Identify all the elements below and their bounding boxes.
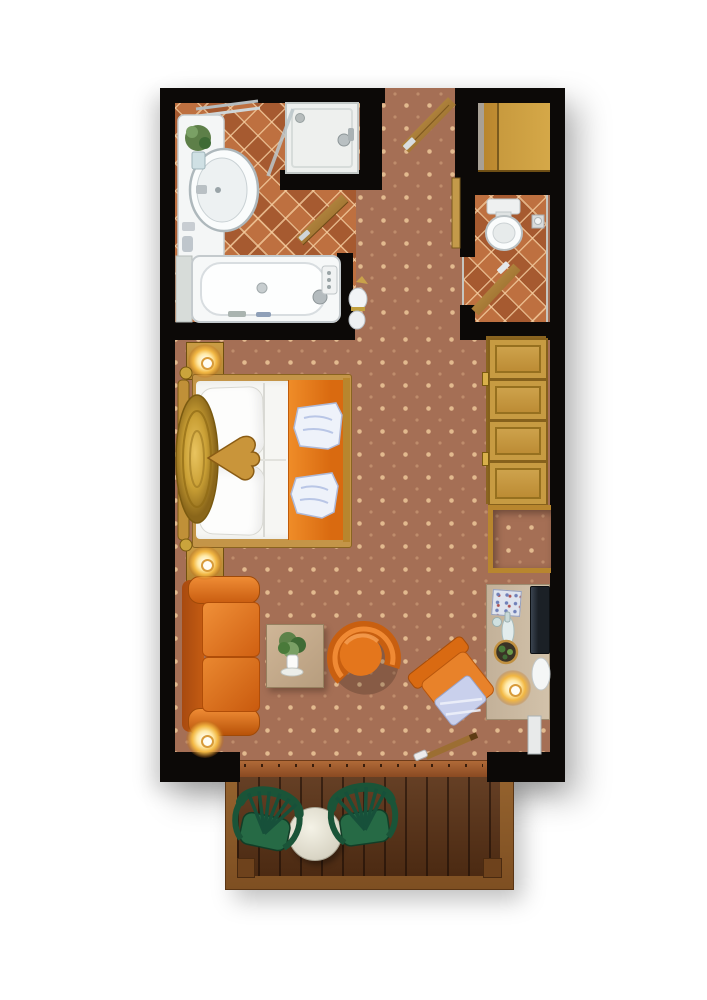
sofa-armrest-top bbox=[188, 576, 260, 604]
wall-closet-left bbox=[455, 88, 478, 173]
wall-shower-bottom bbox=[280, 170, 382, 190]
tv bbox=[530, 586, 550, 654]
pillow bbox=[199, 386, 265, 458]
nightstand-lamp-bottom bbox=[188, 546, 222, 580]
lamp-core bbox=[201, 559, 214, 572]
balcony-corner-left bbox=[237, 858, 255, 878]
threshold-track bbox=[244, 764, 483, 767]
wall-top-left bbox=[160, 88, 385, 103]
floor-lamp bbox=[186, 720, 224, 758]
sofa bbox=[182, 576, 260, 736]
lamp-core bbox=[201, 357, 214, 370]
wardrobe-door-3 bbox=[488, 420, 548, 462]
nightstand-lamp-top bbox=[188, 344, 222, 378]
desk-lamp-core bbox=[509, 684, 522, 697]
sofa-cushion bbox=[202, 657, 260, 712]
wardrobe-door-4 bbox=[488, 461, 548, 506]
balcony-deck bbox=[237, 768, 500, 876]
wardrobe-door-1 bbox=[488, 338, 548, 380]
wall-bathroom-bottom bbox=[160, 322, 355, 340]
magazine bbox=[491, 589, 522, 617]
entry-closet-divider bbox=[497, 103, 499, 170]
balcony-table bbox=[288, 807, 342, 861]
balcony-corner-right bbox=[483, 858, 502, 878]
bathroom-floor bbox=[160, 88, 356, 340]
wall-wc-left-upper bbox=[460, 195, 475, 257]
bed-runner bbox=[288, 380, 345, 540]
balcony-threshold bbox=[240, 760, 487, 777]
luggage-niche bbox=[488, 505, 551, 573]
floor-lamp-core bbox=[201, 735, 214, 748]
wall-wc-top bbox=[455, 170, 565, 195]
pillow bbox=[199, 464, 265, 536]
sheet-center-line bbox=[200, 459, 286, 461]
wall-bottom-right bbox=[487, 752, 565, 782]
wardrobe-door-2 bbox=[488, 379, 548, 421]
desk-lamp bbox=[495, 670, 531, 706]
bed-runner-wood-edge bbox=[343, 378, 350, 542]
wardrobe-hinge-2 bbox=[482, 452, 489, 466]
sofa-cushion bbox=[202, 602, 260, 657]
coffee-table bbox=[266, 624, 324, 688]
entry-closet bbox=[478, 103, 550, 172]
wall-left bbox=[160, 88, 175, 782]
floor-plan bbox=[0, 0, 707, 1000]
wall-wc-left-lower bbox=[460, 305, 475, 340]
wardrobe-hinge-1 bbox=[482, 372, 489, 386]
